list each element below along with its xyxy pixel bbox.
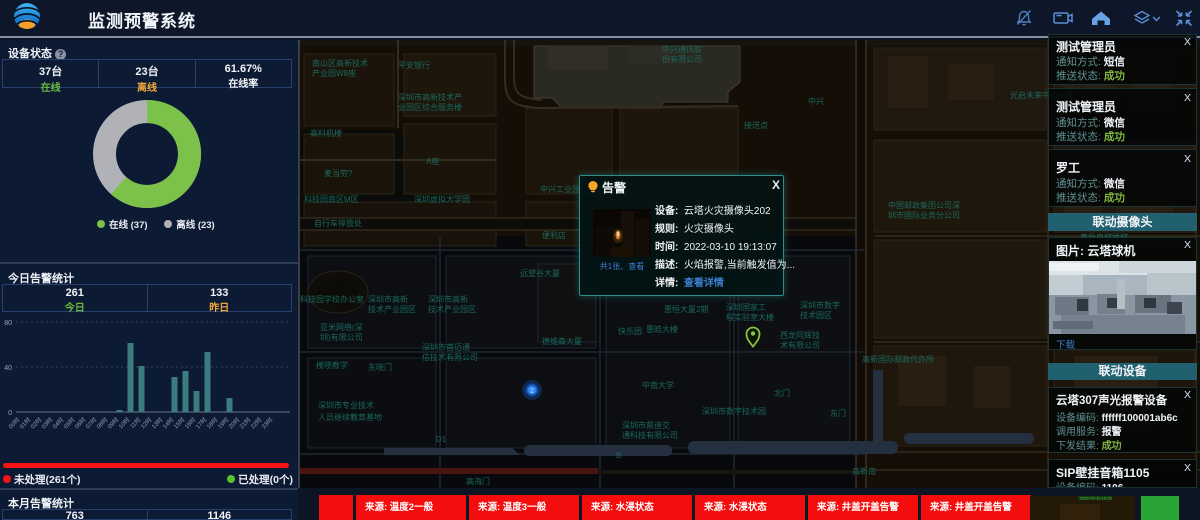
svg-text:23时: 23时 — [260, 416, 275, 431]
svg-text:深圳国家工: 深圳国家工 — [726, 302, 766, 312]
svg-text:2: 2 — [530, 388, 534, 395]
svg-text:中国邮政集团公司深: 中国邮政集团公司深 — [888, 200, 960, 210]
svg-text:04时: 04时 — [51, 416, 66, 431]
svg-text:技术产业园区: 技术产业园区 — [368, 304, 416, 314]
svg-text:圳)有限公司: 圳)有限公司 — [320, 332, 363, 342]
svg-text:术有限公司: 术有限公司 — [780, 340, 820, 350]
svg-text:11时: 11时 — [128, 416, 142, 430]
svg-text:01时: 01时 — [18, 416, 33, 431]
svg-text:南山区高新技术: 南山区高新技术 — [312, 58, 368, 68]
svg-text:东门: 东门 — [830, 408, 846, 418]
svg-text:技术园区: 技术园区 — [800, 310, 832, 320]
svg-text:深圳市数字技术园: 深圳市数字技术园 — [702, 406, 766, 416]
svg-text:高科机楼: 高科机楼 — [310, 128, 342, 138]
svg-text:德维森大厦: 德维森大厦 — [542, 336, 582, 346]
svg-text:深圳市首迈通: 深圳市首迈通 — [422, 342, 470, 352]
svg-text:08时: 08时 — [95, 416, 110, 431]
svg-text:圳市国际业务分公司: 圳市国际业务分公司 — [888, 210, 960, 220]
svg-text:07时: 07时 — [84, 416, 99, 431]
svg-text:信技术有限公司: 信技术有限公司 — [422, 352, 478, 362]
svg-text:05时: 05时 — [62, 416, 77, 431]
svg-text:中兴通讯股: 中兴通讯股 — [662, 44, 702, 54]
svg-text:B: B — [616, 451, 621, 460]
svg-text:02时: 02时 — [29, 416, 44, 431]
svg-text:2022-03-10 19:13: 2022-03-10 19:13 — [1080, 496, 1112, 501]
svg-text:80: 80 — [4, 320, 12, 327]
svg-text:业园区综合服务楼: 业园区综合服务楼 — [398, 102, 462, 112]
svg-text:深圳市高新: 深圳市高新 — [368, 294, 408, 304]
svg-text:远望谷大厦: 远望谷大厦 — [520, 268, 560, 278]
svg-text:东晓门: 东晓门 — [368, 362, 392, 372]
svg-text:深圳市数字: 深圳市数字 — [800, 300, 840, 310]
svg-text:17时: 17时 — [194, 416, 209, 431]
svg-text:09时: 09时 — [106, 416, 121, 431]
svg-text:中南大学: 中南大学 — [642, 380, 674, 390]
svg-text:12时: 12时 — [139, 416, 154, 431]
svg-text:高海门: 高海门 — [466, 476, 490, 486]
svg-text:06时: 06时 — [73, 416, 88, 431]
svg-text:程实验室大楼: 程实验室大楼 — [726, 312, 774, 322]
svg-text:科技园学校办公室: 科技园学校办公室 — [300, 294, 364, 304]
svg-text:16时: 16时 — [183, 416, 198, 431]
svg-text:22时: 22时 — [249, 416, 264, 431]
svg-text:20时: 20时 — [227, 416, 242, 431]
svg-text:技术产业园区: 技术产业园区 — [428, 304, 476, 314]
svg-text:深圳市专业技术: 深圳市专业技术 — [318, 400, 374, 410]
svg-text:中兴: 中兴 — [808, 96, 824, 106]
svg-text:楼晓教学: 楼晓教学 — [316, 360, 348, 370]
svg-text:接送点: 接送点 — [744, 120, 768, 130]
svg-text:03时: 03时 — [40, 416, 55, 431]
svg-text:高新南: 高新南 — [852, 466, 876, 476]
svg-text:份有限公司: 份有限公司 — [662, 54, 702, 64]
svg-text:西龙同辉技: 西龙同辉技 — [780, 330, 820, 340]
svg-text:惠恒大厦2期: 惠恒大厦2期 — [664, 304, 708, 314]
svg-text:自行车停放处: 自行车停放处 — [314, 218, 362, 228]
svg-text:科技园南区M区: 科技园南区M区 — [304, 194, 359, 204]
svg-text:13时: 13时 — [150, 416, 165, 431]
svg-text:北门: 北门 — [774, 388, 790, 398]
svg-text:19时: 19时 — [216, 416, 231, 431]
svg-text:A座: A座 — [426, 156, 439, 166]
svg-text:深圳市高新: 深圳市高新 — [428, 294, 468, 304]
svg-text:惠皓大楼: 惠皓大楼 — [646, 324, 678, 334]
svg-text:通科技有限公司: 通科技有限公司 — [622, 430, 678, 440]
svg-text:深圳市高新技术产: 深圳市高新技术产 — [398, 92, 462, 102]
svg-text:18时: 18时 — [205, 416, 220, 431]
svg-text:21时: 21时 — [238, 416, 253, 431]
svg-text:40: 40 — [4, 365, 12, 372]
svg-text:便利店: 便利店 — [542, 230, 566, 240]
svg-text:深圳虚拟大学园: 深圳虚拟大学园 — [414, 194, 470, 204]
svg-text:高新国际邮政代办所: 高新国际邮政代办所 — [862, 354, 934, 364]
svg-text:中兴工业园: 中兴工业园 — [540, 184, 580, 194]
svg-text:产业园W8座: 产业园W8座 — [312, 68, 356, 78]
svg-text:15时: 15时 — [172, 416, 187, 431]
svg-text:14时: 14时 — [161, 416, 176, 431]
svg-text:快乐园: 快乐园 — [618, 326, 642, 336]
svg-text:亚米网络(深: 亚米网络(深 — [320, 322, 363, 332]
svg-text:平安银行: 平安银行 — [398, 60, 430, 70]
svg-text:00时: 00时 — [7, 416, 22, 431]
svg-text:深圳市鼎迪交: 深圳市鼎迪交 — [622, 420, 670, 430]
svg-text:D1: D1 — [436, 435, 447, 444]
svg-text:10时: 10时 — [117, 416, 132, 431]
svg-text:麦当劳?: 麦当劳? — [324, 168, 353, 178]
svg-text:人员继续教育基地: 人员继续教育基地 — [318, 412, 382, 422]
svg-text:0: 0 — [8, 410, 12, 417]
